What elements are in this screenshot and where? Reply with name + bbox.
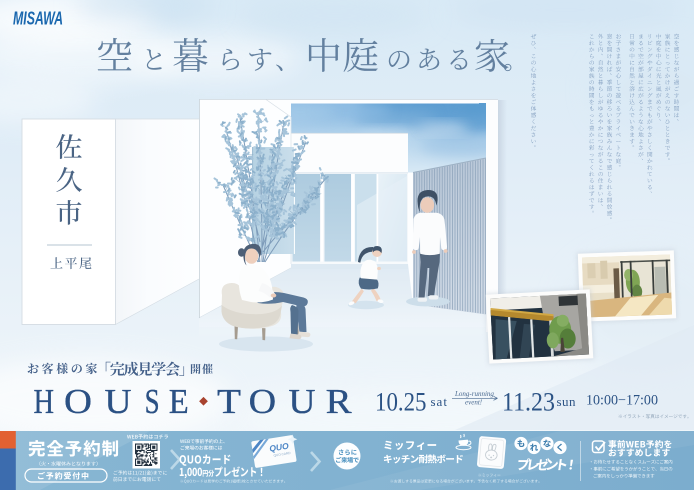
svg-text:U: U [289,382,316,421]
svg-text:10.25: 10.25 [375,388,427,417]
svg-text:10:00−17:00: 10:00−17:00 [586,393,658,409]
svg-text:U: U [105,382,132,421]
svg-text:MISAWA: MISAWA [13,8,63,29]
svg-text:11.23: 11.23 [502,388,555,417]
svg-text:T: T [217,382,241,421]
svg-text:O: O [64,382,92,421]
svg-text:sun: sun [557,394,577,409]
svg-text:sat: sat [431,394,448,409]
svg-text:event!: event! [465,399,483,407]
svg-text:O: O [249,382,277,421]
svg-text:E: E [169,382,189,421]
svg-text:S: S [145,382,160,421]
svg-text:H: H [34,382,55,421]
svg-text:R: R [326,382,353,421]
svg-text:Long-running: Long-running [454,390,494,398]
